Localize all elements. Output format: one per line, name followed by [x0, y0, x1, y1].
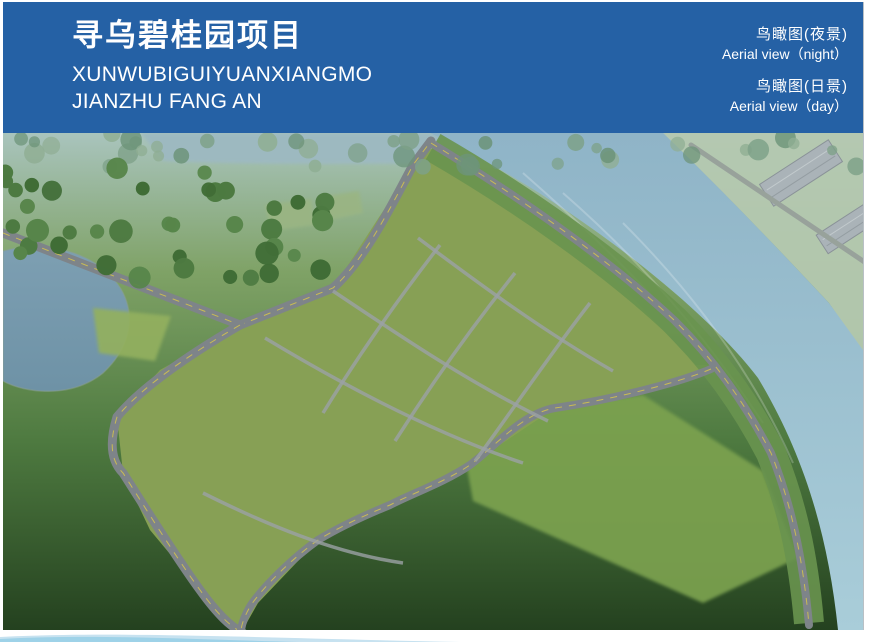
title-block: 寻乌碧桂园项目 XUNWUBIGUIYUANXIANGMO JIANZHU FA… — [72, 16, 372, 115]
view-label-night-en: Aerial view（night） — [722, 45, 848, 63]
view-label-night: 鸟瞰图(夜景) Aerial view（night） — [722, 24, 848, 63]
page-subtitle-line2: JIANZHU FANG AN — [72, 88, 372, 115]
view-label-night-cn: 鸟瞰图(夜景) — [722, 24, 848, 45]
header-band: 寻乌碧桂园项目 XUNWUBIGUIYUANXIANGMO JIANZHU FA… — [3, 2, 863, 133]
slide: 寻乌碧桂园项目 XUNWUBIGUIYUANXIANGMO JIANZHU FA… — [0, 0, 873, 642]
page-edge-divider — [863, 2, 864, 630]
view-label-day-cn: 鸟瞰图(日景) — [722, 76, 848, 97]
view-labels: 鸟瞰图(夜景) Aerial view（night） 鸟瞰图(日景) Aeria… — [722, 24, 848, 128]
footer-wave-decoration — [0, 630, 460, 642]
aerial-view-image — [3, 133, 863, 630]
page-title: 寻乌碧桂园项目 — [72, 16, 372, 56]
view-label-day: 鸟瞰图(日景) Aerial view（day） — [722, 76, 848, 115]
page-subtitle-line1: XUNWUBIGUIYUANXIANGMO — [72, 61, 372, 88]
page-subtitle: XUNWUBIGUIYUANXIANGMO JIANZHU FANG AN — [72, 61, 372, 115]
view-label-day-en: Aerial view（day） — [722, 97, 848, 115]
